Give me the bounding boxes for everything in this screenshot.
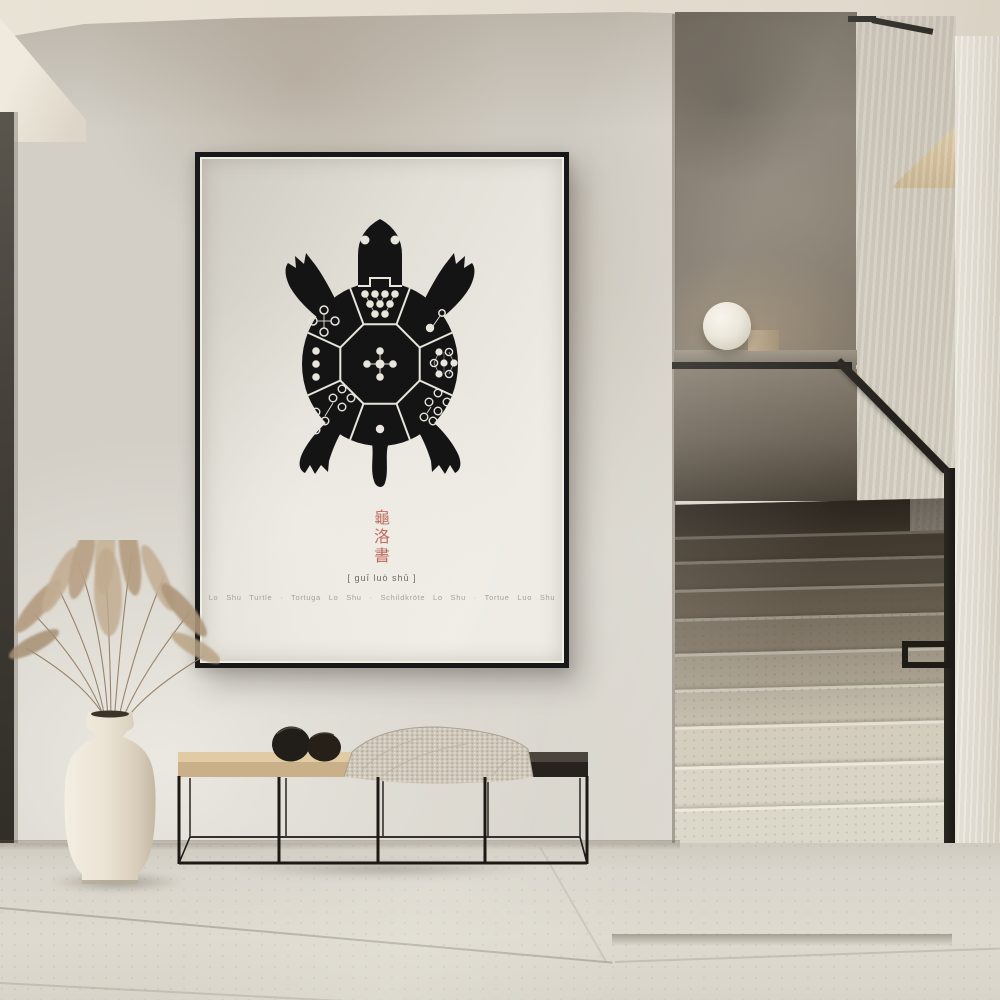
stair-side-wall	[856, 16, 956, 536]
title-char-1: 龜	[200, 509, 564, 528]
sphere-lamp	[703, 302, 751, 350]
pinyin-label: [ guī luò shū ]	[200, 573, 564, 583]
caption-line: Lo Shu Turtle · Tortuga Lo Shu · Schildk…	[200, 593, 564, 602]
poster-text-block: 龜 洛 書 [ guī luò shū ] Lo Shu Turtle · To…	[200, 509, 564, 602]
tail	[372, 443, 388, 487]
balustrade-top-rail	[672, 362, 852, 369]
bench	[176, 718, 592, 870]
dots-1	[376, 425, 384, 433]
right-eye	[391, 236, 400, 245]
hallway-scene: 龜 洛 書 [ guī luò shū ] Lo Shu Turtle · To…	[0, 0, 1000, 1000]
poster-paper: 龜 洛 書 [ guī luò shū ] Lo Shu Turtle · To…	[200, 157, 564, 663]
vase-mouth	[91, 711, 129, 718]
right-wall-column	[955, 36, 1000, 944]
dots-3	[312, 347, 320, 381]
stairs-foot-shadow	[612, 934, 952, 946]
wall-niche	[893, 128, 955, 188]
glass-balustrade	[674, 369, 857, 501]
wood-block	[748, 330, 779, 351]
stair-back-wall	[675, 12, 857, 372]
bench-back-frame	[190, 778, 580, 837]
vase	[58, 708, 162, 890]
left-eye	[361, 236, 370, 245]
framed-poster: 龜 洛 書 [ guī luò shū ] Lo Shu Turtle · To…	[195, 152, 569, 668]
blanket	[344, 727, 533, 784]
title-char-3: 書	[200, 547, 564, 566]
plumes	[8, 540, 220, 669]
title-char-2: 洛	[200, 528, 564, 547]
handrail-bracket	[902, 641, 952, 668]
